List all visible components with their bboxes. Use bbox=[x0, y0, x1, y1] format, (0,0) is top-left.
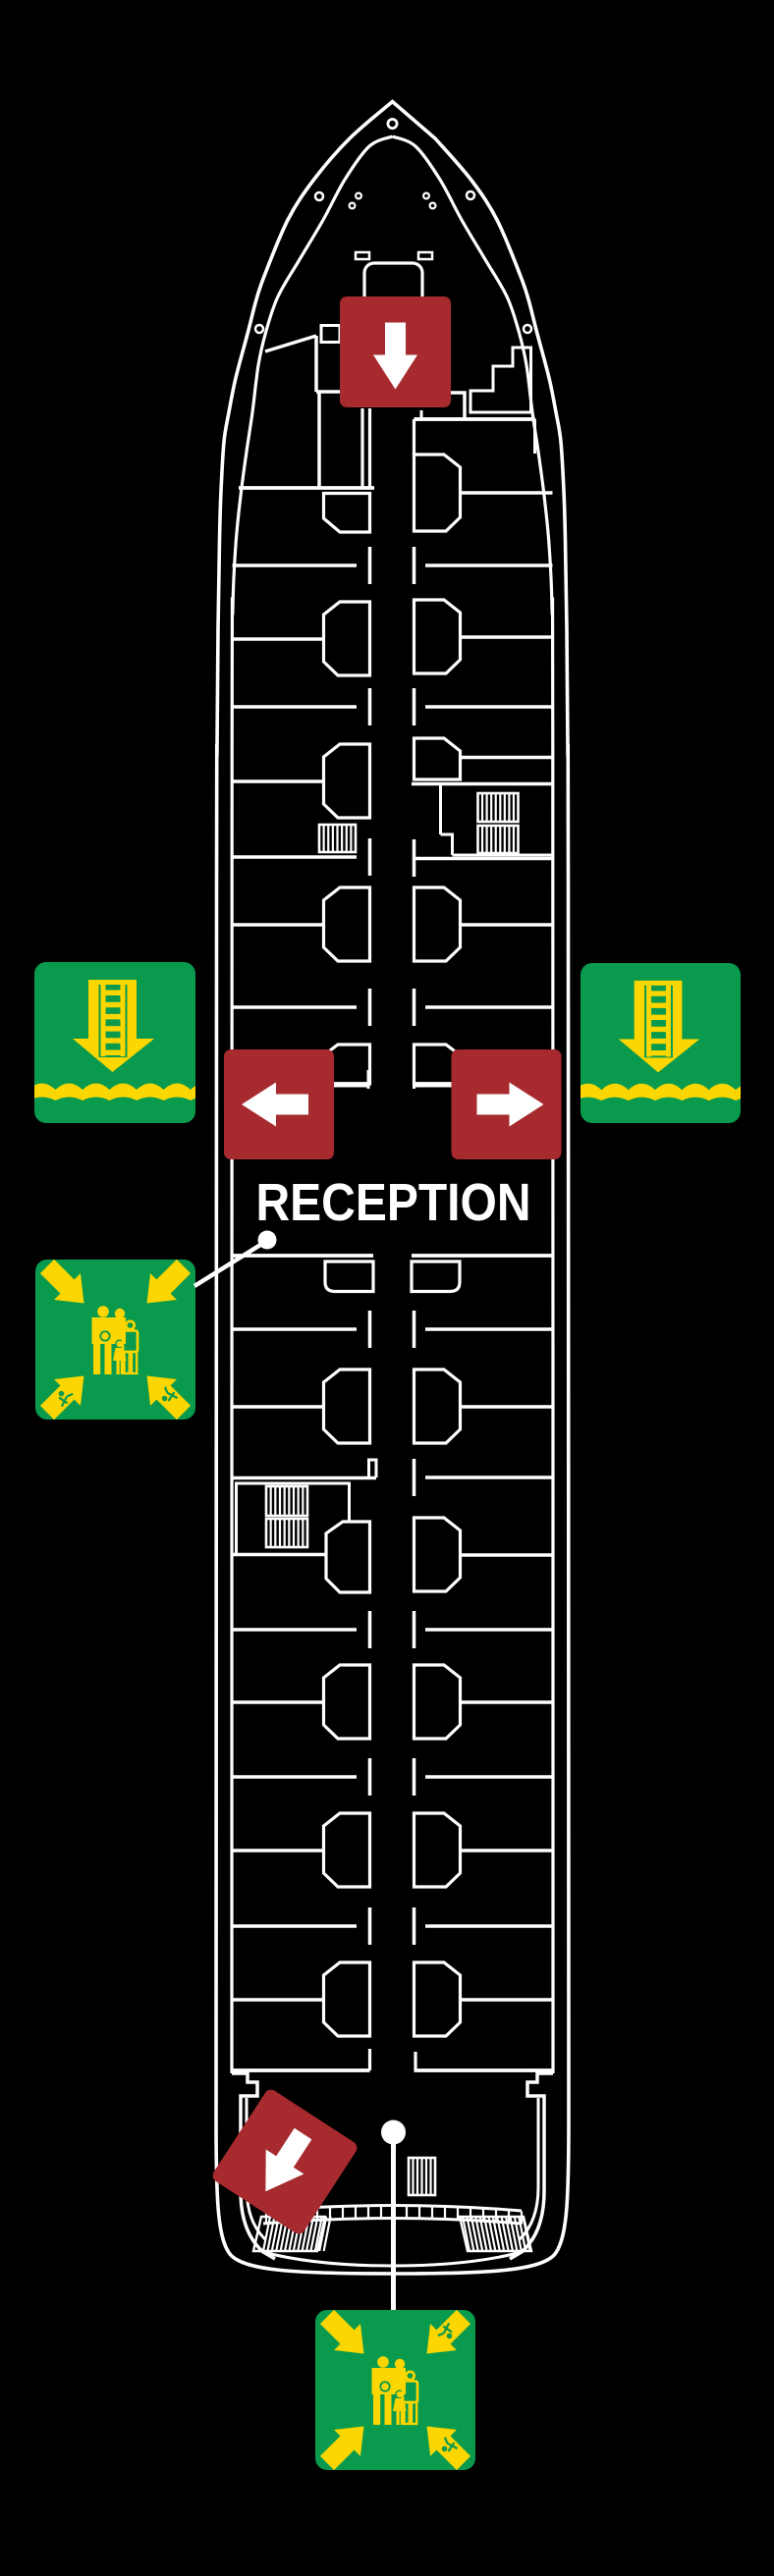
svg-text:RECEPTION: RECEPTION bbox=[256, 1174, 531, 1232]
